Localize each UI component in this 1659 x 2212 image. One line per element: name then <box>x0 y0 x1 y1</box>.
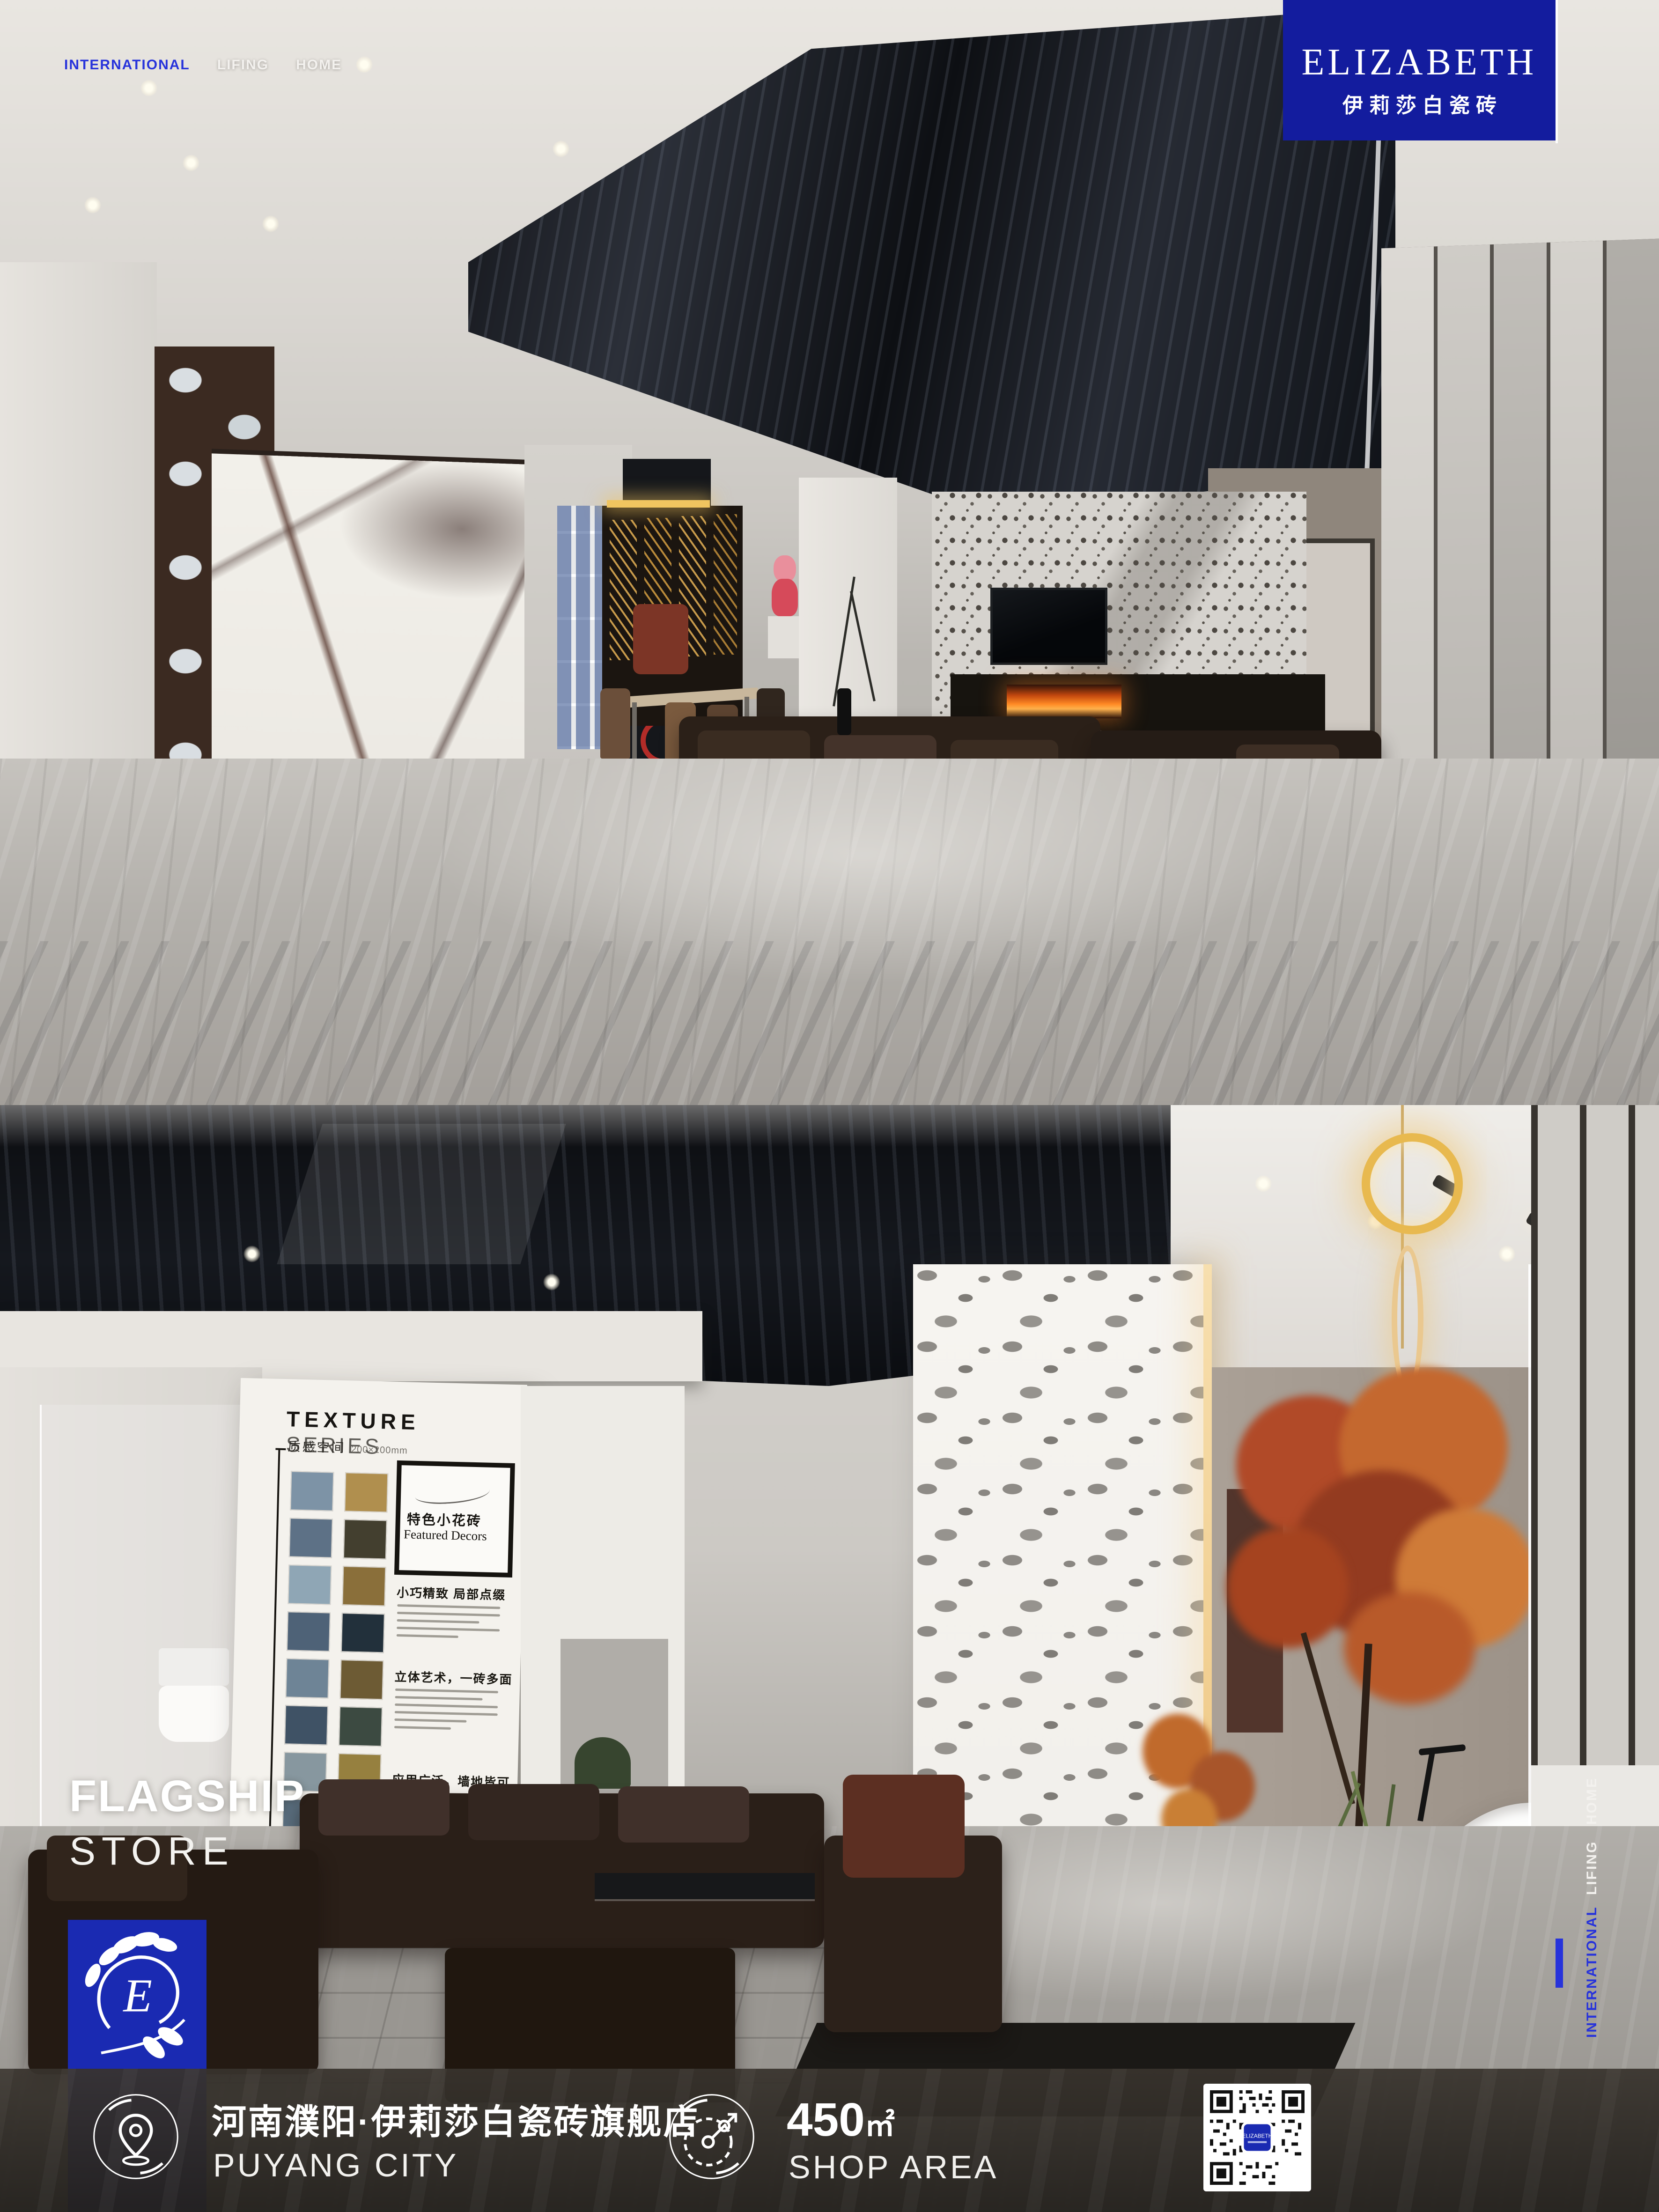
poster-section-1: 小巧精致 局部点缀 <box>397 1583 506 1603</box>
spotlight-icon <box>356 56 373 73</box>
wall-seam-line <box>1528 1264 1531 1840</box>
brand-name: ELIZABETH <box>1302 44 1537 81</box>
hero-title: FLAGSHIP STORE <box>69 1771 305 1874</box>
spotlight-icon <box>140 80 157 96</box>
shop-area-value: 450㎡ <box>787 2093 895 2147</box>
store-location-en: PUYANG CITY <box>213 2146 458 2184</box>
hero-line1: FLAGSHIP <box>69 1771 305 1822</box>
tile-display-wall-bottom-right <box>1531 1105 1659 1765</box>
side-nav-item-home[interactable]: HOME <box>1584 1778 1600 1825</box>
nav-item-lifing[interactable]: LIFING <box>217 57 269 73</box>
black-gloss-ceiling <box>468 14 1395 510</box>
tile-display-wall-right <box>1381 239 1659 839</box>
side-nav-item-international[interactable]: INTERNATIONAL <box>1584 1879 1600 2038</box>
location-pin-icon <box>91 2092 180 2181</box>
spotlight-icon <box>84 197 101 214</box>
compass-area-icon <box>667 2092 756 2181</box>
svg-text:ELIZABETH: ELIZABETH <box>1242 2133 1272 2139</box>
brand-block: ELIZABETH 伊莉莎白瓷砖 <box>1283 0 1556 140</box>
shop-area-label: SHOP AREA <box>789 2148 998 2186</box>
coffee-table <box>595 1873 815 1899</box>
tv-screen <box>990 588 1107 665</box>
toilet <box>159 1686 229 1742</box>
showroom-photo-bottom: TEXTURE SERIES 质感空间 200×200mm 特色小花砖 Feat… <box>0 1105 1659 2212</box>
leaf-monogram-icon: E <box>68 1920 206 2070</box>
side-nav-indicator <box>1556 1939 1563 1988</box>
showroom-photo-top <box>0 0 1659 1105</box>
floor-reflection <box>0 941 1659 1105</box>
qr-code: ELIZABETH <box>1203 2084 1311 2191</box>
red-accent-chair <box>633 604 688 674</box>
poster-section-2: 立体艺术，一砖多面 <box>394 1667 513 1688</box>
svg-text:E: E <box>122 1969 152 2022</box>
spotlight-icon <box>183 155 199 171</box>
brand-divider-line <box>1556 0 1558 143</box>
leather-lounge-chair <box>843 1775 965 1878</box>
flagship-store-page: TEXTURE SERIES 质感空间 200×200mm 特色小花砖 Feat… <box>0 0 1659 2212</box>
nav-item-international[interactable]: INTERNATIONAL <box>64 57 190 73</box>
nav-item-home[interactable]: HOME <box>296 57 342 73</box>
top-navigation: INTERNATIONAL LIFING HOME <box>64 57 342 73</box>
brand-name-chinese: 伊莉莎白瓷砖 <box>1342 88 1503 118</box>
store-location-cn: 河南濮阳·伊莉莎白瓷砖旗舰店 <box>212 2094 700 2144</box>
featured-decors-badge: 特色小花砖 Featured Decors <box>394 1460 515 1578</box>
fireplace <box>1007 685 1121 718</box>
script-flourish <box>414 1482 490 1505</box>
poster-subtitle: 质感空间 200×200mm <box>288 1436 408 1457</box>
hero-line2: STORE <box>69 1829 305 1874</box>
spotlight-icon <box>262 215 279 232</box>
spotlight-icon <box>553 140 569 157</box>
pendant-bar-light <box>607 500 710 508</box>
